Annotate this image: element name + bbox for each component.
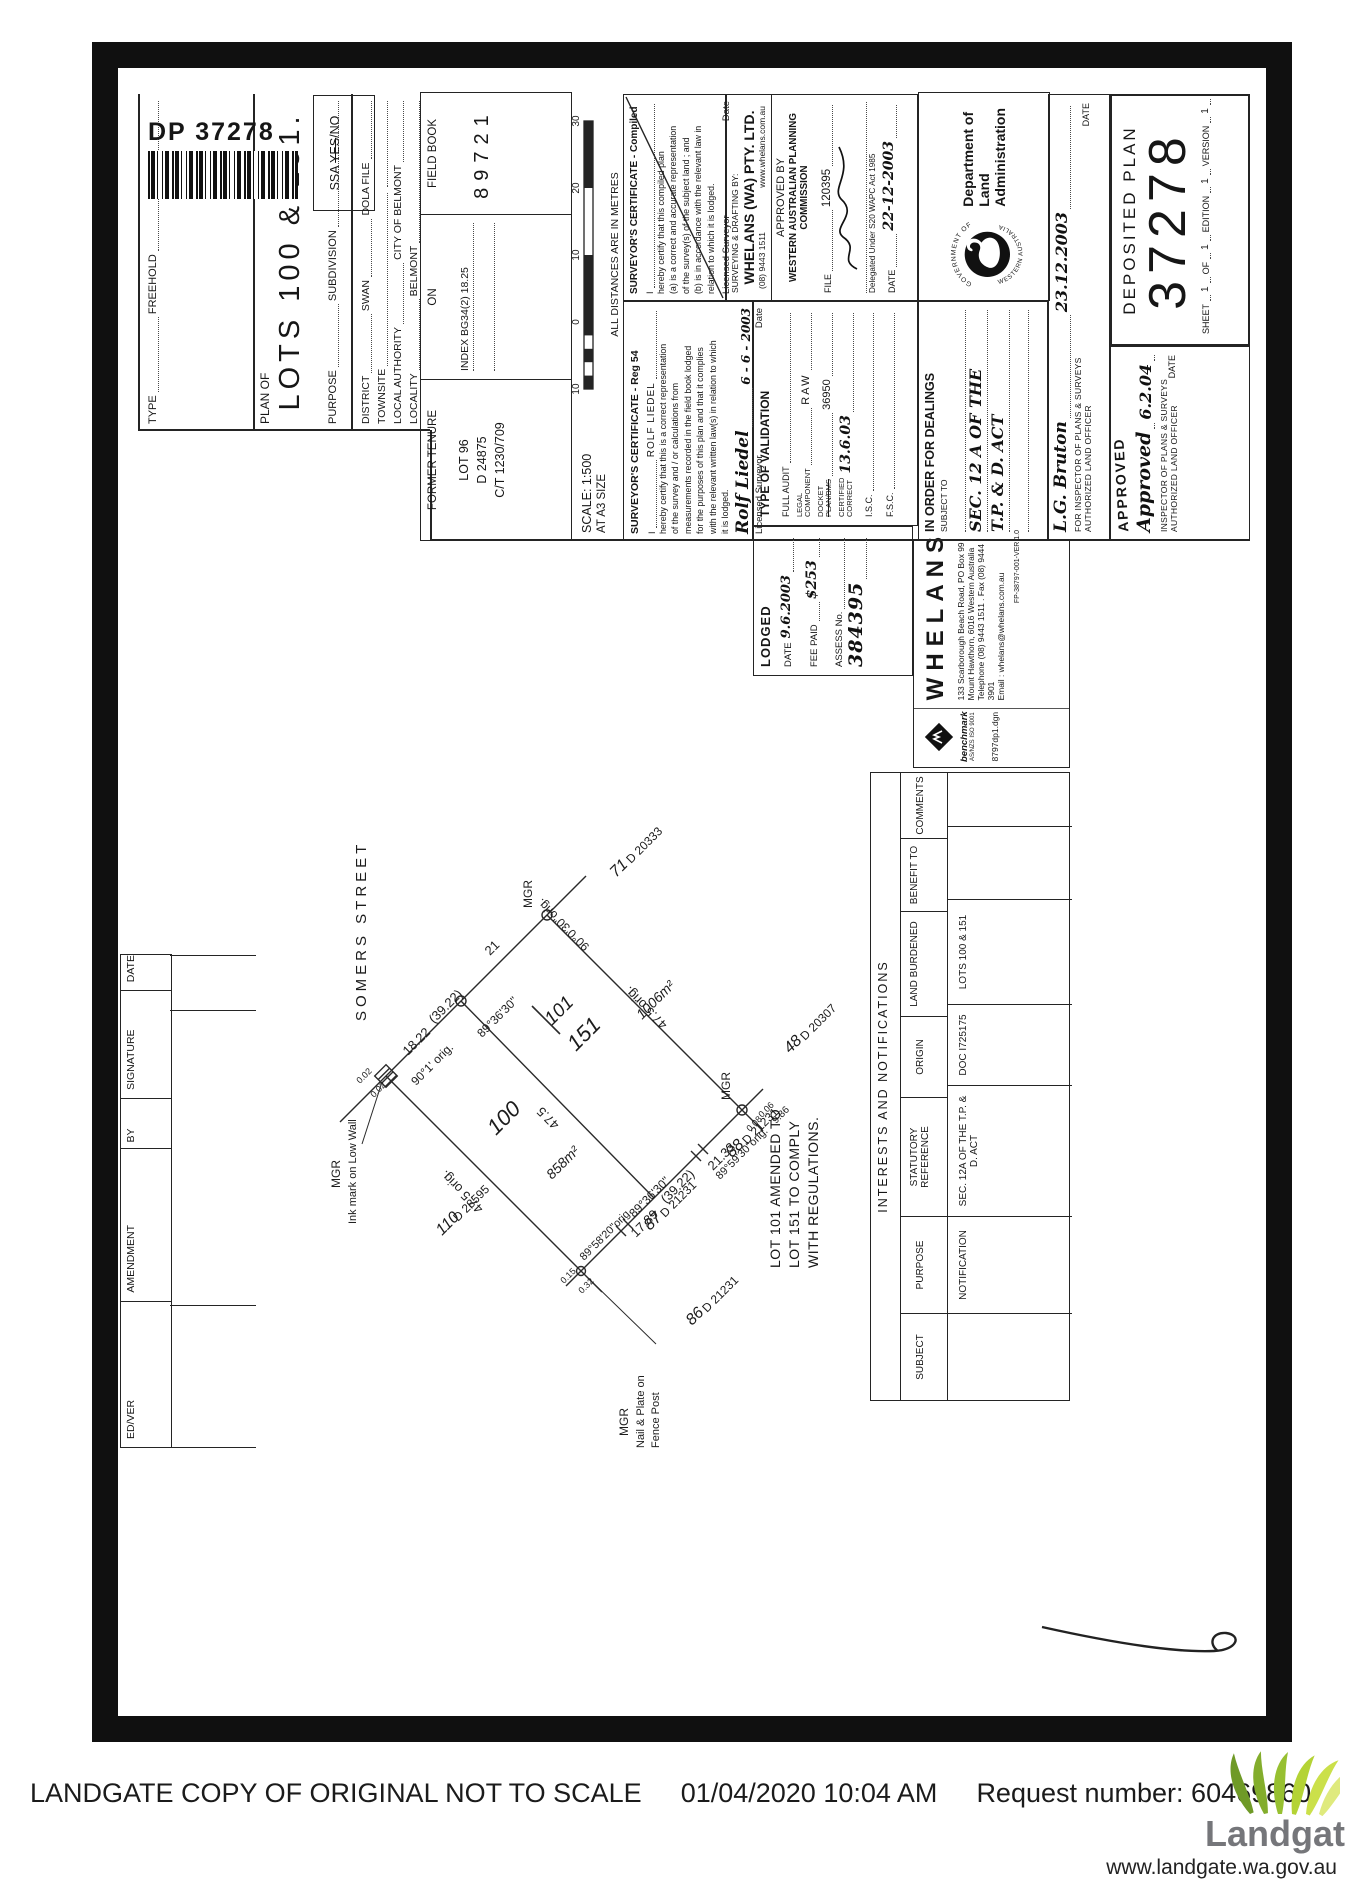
mgr-west-label: MGR [329, 1160, 343, 1188]
purpose-label: PURPOSE [327, 370, 339, 424]
interests-cell-comments [948, 773, 1072, 826]
benchmark-logo-icon [924, 722, 954, 752]
whelans-plan-ref: FP-38797-001-VER 1.0 [1014, 530, 1021, 700]
interests-header-purpose: PURPOSE [901, 1216, 947, 1313]
offset-w2: 0.02 [354, 1066, 373, 1085]
reg54-line3: measurements recorded in the field book … [683, 308, 695, 534]
legal-component-label: LEGALCOMPONENT [796, 468, 812, 517]
wa-government-crest-icon: GOVERNMENT OF WESTERN AUSTRALIA [928, 211, 1040, 298]
on-index-value: INDEX BG34(2) 18.25 [459, 223, 474, 371]
lodged-date-label: DATE [783, 642, 794, 667]
lodged-fee-label: FEE PAID [809, 624, 820, 667]
legal-component-value: RAW [800, 373, 812, 404]
svg-text:20: 20 [571, 183, 582, 195]
field-book-value: 89721 [471, 93, 494, 214]
wapc-box: SURVEYING & DRAFTING BY: WHELANS (WA) PT… [726, 94, 918, 301]
approval2-caption2: AUTHORIZED LAND OFFICER [1169, 379, 1179, 532]
interests-header-statutory: STATUTORY REFERENCE [901, 1097, 947, 1216]
lot-amendment-note: LOT 101 AMENDED TO LOT 151 TO COMPLY WIT… [766, 1038, 823, 1268]
interests-cell-subject [948, 1313, 1072, 1400]
former-tenure-lot: LOT 96 [457, 380, 471, 540]
mgr-sw-caption-1: Nail & Plate on [635, 1375, 647, 1448]
edition-value: 1 [1200, 178, 1211, 184]
former-tenure-ref: D 24875 [475, 380, 489, 540]
full-audit-label: FULL AUDIT [781, 466, 791, 517]
government-crest-block: GOVERNMENT OF WESTERN AUSTRALIA Departme… [918, 92, 1050, 301]
lot-100-number: 100 [482, 1095, 526, 1139]
lot-48-ref: D 20307 [797, 1001, 839, 1043]
svg-text:30: 30 [571, 116, 582, 128]
landgate-url: www.landgate.wa.gov.au [1106, 1856, 1337, 1880]
reg54-line2: of the survey and / or calculations from [670, 308, 682, 534]
approved-stamp: APPROVED [1111, 442, 1132, 533]
angle-v1: 89°36'30" [474, 994, 520, 1040]
hand-tick-mark [1038, 1601, 1258, 1691]
interests-cell-benefit-to [948, 826, 1072, 899]
whelans-addr3: Telephone (08) 9443 1511 . Fax (08) 9444… [976, 530, 996, 700]
lodged-assess-label: ASSESS No. [834, 612, 845, 667]
angle-sw: 89°58'20"orig [578, 1208, 633, 1263]
mgr-sw-caption-2: Fence Post [650, 1392, 662, 1448]
version-label: VERSION [1201, 126, 1211, 167]
angle-east: 90°0'30"orig. [534, 896, 592, 954]
offset-sw1: 0.15 [558, 1266, 577, 1285]
interests-header-benefit-to: BENEFIT TO [901, 838, 947, 911]
amendment-col-date: DATE [121, 955, 171, 990]
street-name: SOMERS STREET [353, 841, 370, 1021]
approval2-date: 6.2.04 [1136, 364, 1155, 420]
surveyors-certificate-reg54: SURVEYOR'S CERTIFICATE - Reg 54 IROLF LI… [623, 301, 753, 541]
interests-header-origin: ORIGIN [901, 1016, 947, 1097]
offset-sw2: 0.32 [576, 1276, 595, 1295]
approval1-caption2: AUTHORIZED LAND OFFICER [1083, 357, 1093, 532]
docket-value: 36950 [821, 379, 833, 410]
edition-label: EDITION [1201, 196, 1211, 233]
plan-of-label: PLAN OF [258, 373, 272, 424]
of-label: OF [1201, 262, 1211, 275]
landgate-leaves-icon [1230, 1742, 1340, 1816]
dealings-hand-line1: SEC. 12 A OF THE [966, 310, 988, 532]
type-value: FREEHOLD [147, 254, 159, 314]
approval1-caption1: FOR INSPECTOR OF PLANS & SURVEYS [1073, 357, 1083, 532]
version-value: 1 [1200, 108, 1211, 114]
lot-86-ref: D 21231 [699, 1273, 741, 1315]
svg-text:10: 10 [571, 250, 582, 262]
deposited-plan-box: DEPOSITED PLAN 37278 SHEET 1 OF 1 EDITIO… [1110, 94, 1250, 346]
approval2-hand: Approved [1133, 432, 1155, 532]
wapc-file-value: 120395 [821, 169, 833, 207]
interests-cell-purpose: NOTIFICATION [948, 1216, 1072, 1313]
amendment-col-signature: SIGNATURE [121, 990, 171, 1098]
dept-line1: Department of [960, 93, 976, 207]
of-value: 1 [1200, 244, 1211, 250]
scale-note: ALL DISTANCES ARE IN METRES [609, 94, 621, 415]
sheet-value: 1 [1200, 286, 1211, 292]
benchmark-sub-label: AS/NZS ISO 9001 [970, 711, 976, 762]
on-header: ON [427, 223, 439, 371]
lot-amendment-note-line2: LOT 151 TO COMPLY [785, 1038, 804, 1268]
former-tenure-ct: C/T 1230/709 [493, 380, 507, 540]
interests-title: INTERESTS AND NOTIFICATIONS [871, 773, 901, 1400]
approval2-date-label: DATE [1167, 355, 1179, 378]
whelans-name: WHELANS [922, 530, 950, 700]
approval1-date: 23.12.2003 [1052, 212, 1071, 312]
interests-header-comments: COMMENTS [901, 773, 947, 838]
reg54-i: I [647, 531, 657, 534]
local-authority-label: LOCAL AUTHORITY [392, 327, 404, 424]
interests-cell-land-burdened: LOTS 100 & 151 [948, 899, 1072, 1004]
dp-barcode [148, 151, 298, 199]
lot-amendment-note-line1: LOT 101 AMENDED TO [766, 1038, 785, 1268]
dealings-box: IN ORDER FOR DEALINGS SUBJECT TO SEC. 12… [918, 301, 1048, 541]
approval1-signature: L.G. Bruton [1051, 421, 1071, 532]
reg54-name: ROLF LIEDEL [646, 382, 657, 457]
docket-label: DOCKETPLAN/BMS [817, 479, 833, 517]
lodged-assess-value: 384395 [845, 582, 867, 667]
lodged-header: LODGED [758, 535, 773, 667]
reg54-line4: for the purposes of this plan and that i… [695, 308, 707, 534]
reg54-line5: with the relevant written law(s) in rela… [708, 308, 720, 534]
commission-name: WESTERN AUSTRALIAN PLANNING COMMISSION [788, 102, 810, 293]
district-value: SWAN [360, 280, 372, 311]
whelans-addr2: Mount Hawthorn, 6016 Western Australia [966, 530, 976, 700]
validation-header: TYPE OF VALIDATION [758, 310, 772, 517]
mgr-sw-label: MGR [617, 1408, 631, 1436]
sd-by-label: SURVEYING & DRAFTING BY: [730, 102, 740, 293]
lot-amendment-note-line3: WITH REGULATIONS. [804, 1038, 823, 1268]
whelans-addr4: Email : whelans@whelans.com.au [996, 530, 1006, 700]
landgate-logo: Landgate [1205, 1742, 1340, 1855]
dept-line2: Land Administration [976, 93, 1008, 207]
isc-label: I.S.C. [864, 494, 874, 517]
lot-71-ref: D 20333 [623, 824, 665, 866]
certified-correct-label: CERTIFIEDCORRECT [838, 478, 854, 517]
amendment-col-amendment: AMENDMENT [121, 1148, 171, 1300]
compiled-strike-line [624, 95, 725, 300]
approval-row-1: L.G. Bruton 23.12.2003 FOR INSPECTOR OF … [1048, 94, 1110, 541]
former-tenure-header: FORMER TENURE [427, 380, 439, 540]
former-tenure-box: FORMER TENURE LOT 96 D 24875 C/T 1230/70… [420, 92, 572, 541]
type-label: TYPE [147, 395, 159, 424]
plan-file-name: 8797dp1.dgn [990, 711, 1000, 762]
interests-header-subject: SUBJECT [901, 1313, 947, 1400]
purpose-value: SUBDIVISION [327, 230, 339, 301]
reg54-title: SURVEYOR'S CERTIFICATE - Reg 54 [629, 308, 641, 534]
local-authority-value: CITY OF BELMONT [392, 165, 404, 260]
lot-151-number: 151 [562, 1012, 606, 1056]
interests-cell-origin: DOC I725175 [948, 1004, 1072, 1085]
approved-by-label: APPROVED BY [775, 102, 787, 293]
reg54-signature: Rolf Liedel [733, 430, 753, 534]
plan-sheet: ED/VER AMENDMENT BY SIGNATURE DATE [118, 68, 1266, 1716]
wapc-signature [835, 123, 861, 273]
approval1-date-label: DATE [1081, 103, 1093, 126]
wapc-file-label: FILE [823, 274, 833, 293]
reg54-line6: it is lodged. [720, 308, 732, 534]
lodged-fee-value: $253 [804, 560, 820, 599]
locality-block: DISTRICT SWAN DOLA FILE TOWNSITE LOCAL A… [356, 98, 420, 424]
wapc-date-label: DATE [887, 270, 897, 293]
amendment-col-edver: ED/VER [121, 1301, 171, 1447]
fsc-label: F.S.C. [885, 492, 895, 517]
district-label: DISTRICT [360, 376, 372, 424]
scale-row: SCALE: 1:500 AT A3 SIZE 10 0 10 20 30 AL… [570, 94, 623, 541]
lodged-date-value: 9.6.2003 [779, 575, 794, 638]
approval2-caption1: INSPECTOR OF PLANS & SURVEYS [1159, 379, 1169, 532]
footer-disclaimer: LANDGATE COPY OF ORIGINAL NOT TO SCALE 0… [30, 1778, 1311, 1809]
whelans-addr1: 133 Scarborough Beach Road, PO Box 99 [956, 530, 966, 700]
scale-size-text: AT A3 SIZE [596, 415, 608, 533]
validation-box: TYPE OF VALIDATION FULL AUDIT LEGALCOMPO… [753, 301, 918, 526]
lot-100-area: 858m² [543, 1142, 583, 1182]
field-book-header: FIELD BOOK [427, 93, 439, 214]
dp-barcode-sticker: DP 37278 [148, 118, 298, 199]
dola-file-label: DOLA FILE [360, 162, 372, 215]
mgr-se-label: MGR [719, 1072, 733, 1100]
lot-101-old-number: 101 [541, 992, 578, 1029]
scale-text: SCALE: 1:500 [580, 415, 594, 533]
dim-front-east: 21 [482, 937, 503, 958]
dim-front-west: 18.22 [400, 1025, 434, 1059]
deposited-plan-title: DEPOSITED PLAN [1120, 96, 1140, 344]
scale-bar: 10 0 10 20 30 [570, 110, 604, 400]
mgr-east-label: MGR [521, 880, 535, 908]
amendment-col-by: BY [121, 1098, 171, 1149]
footer-text1: LANDGATE COPY OF ORIGINAL NOT TO SCALE [30, 1778, 642, 1808]
certified-correct-value: 13.6.03 [838, 415, 854, 473]
sd-web: www.whelans.com.au [757, 106, 767, 188]
wapc-delegated: Delegated Under S20 WAPC Act 1985 [866, 102, 877, 293]
approval-row-2: APPROVED Approved 6.2.04 INSPECTOR OF PL… [1110, 346, 1250, 541]
plan-sheet-wrapper: ED/VER AMENDMENT BY SIGNATURE DATE [118, 68, 1266, 1716]
dealings-header: IN ORDER FOR DEALINGS [923, 310, 937, 532]
surveyors-certificate-compiled: SURVEYOR'S CERTIFICATE - Compiled I here… [623, 94, 726, 301]
leader-sw [586, 1276, 656, 1344]
subject-to-label: SUBJECT TO [939, 310, 949, 532]
deposited-plan-number: 37278 [1142, 96, 1194, 344]
interests-cell-statutory: SEC. 12A OF THE T.P. & D. ACT [948, 1085, 1072, 1216]
townsite-label: TOWNSITE [376, 369, 388, 424]
dp-number-label: DP 37278 [148, 118, 298, 147]
wapc-date-value: 22-12-2003 [881, 141, 897, 231]
interests-table: INTERESTS AND NOTIFICATIONS SUBJECT PURP… [870, 772, 1070, 1401]
locality-value: BELMONT [408, 246, 420, 297]
benchmark-label: benchmark [959, 711, 970, 762]
sd-phone: (08) 9443 1511 [757, 232, 767, 289]
sd-firm: WHELANS (WA) PTY. LTD. [741, 102, 757, 293]
whelans-block: benchmark AS/NZS ISO 9001 8797dp1.dgn WH… [913, 539, 1070, 768]
sheet-label: SHEET [1201, 304, 1211, 334]
offset-w1: 0.02 [368, 1080, 387, 1099]
dealings-hand-line2: T.P. & D. ACT [988, 310, 1010, 532]
svg-text:10: 10 [571, 384, 582, 396]
mgr-west-caption: Ink mark on Low Wall [347, 1119, 359, 1224]
purpose-row: PURPOSE SUBDIVISION [324, 98, 339, 424]
interests-header-land-burdened: LAND BURDENED [901, 911, 947, 1016]
locality-label: LOCALITY [408, 373, 420, 424]
lodged-box: LODGED DATE9.6.2003 FEE PAID$253 ASSESS … [753, 526, 913, 676]
footer-text2: 01/04/2020 10:04 AM [681, 1778, 938, 1808]
reg54-date-value: 6 - 6 - 2003 [739, 308, 753, 385]
landgate-logo-text: Landgate [1205, 1813, 1340, 1855]
dim-depth-mid: 47.5 [534, 1104, 563, 1133]
svg-text:0: 0 [571, 319, 582, 325]
reg54-line1: hereby certify that this is a correct re… [658, 308, 670, 534]
